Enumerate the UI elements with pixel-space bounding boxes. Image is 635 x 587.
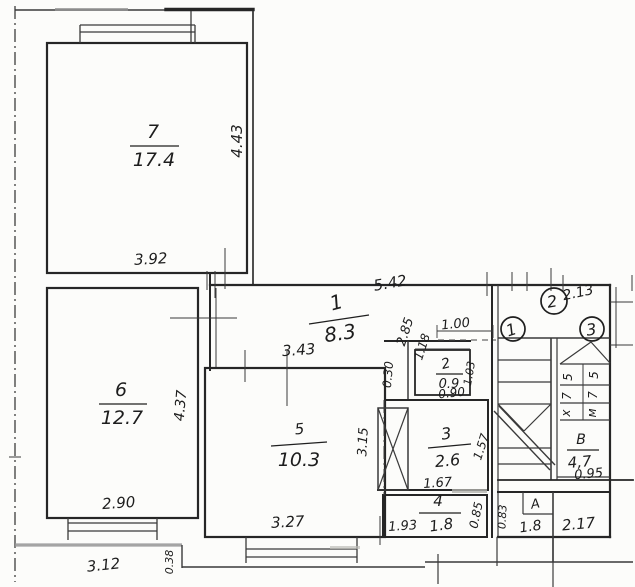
room-number: А <box>529 496 541 512</box>
dim-room5-width-top: 3.43 <box>281 340 316 360</box>
room-3-label: 3 2.6 <box>428 423 471 471</box>
dim-room4-width: 1.93 <box>388 518 418 535</box>
room-number: 4 <box>433 492 443 510</box>
entry-marker-1-number: 1 <box>504 319 520 340</box>
dim-wall-niche: 0.30 <box>380 360 396 388</box>
room-6-label: 6 12.7 <box>99 379 147 429</box>
floor-plan-drawing: 7 17.4 6 12.7 5 10.3 1 8.3 2 0.9 3 2.6 <box>0 0 635 587</box>
dim-outer-width-left: 3.12 <box>86 554 121 575</box>
entry-marker-3-number: 3 <box>585 319 598 339</box>
staircase <box>438 338 633 480</box>
dim-room5-width-bottom: 3.27 <box>271 512 306 532</box>
dim-room4-height: 0.85 <box>466 501 485 530</box>
room-number: В <box>576 432 586 448</box>
stair-left-char-3: х <box>559 409 573 418</box>
room-number: 3 <box>440 423 453 443</box>
room-area: 10.3 <box>278 449 320 471</box>
room-A-label: А 1.8 <box>518 496 542 536</box>
window-room5-bottom <box>246 537 357 563</box>
room-5-label: 5 10.3 <box>271 420 327 471</box>
stair-right-char-2: 7 <box>586 391 600 399</box>
stair-right-char-3: м <box>585 408 599 417</box>
room-7-label: 7 17.4 <box>130 121 179 171</box>
dim-hall-diag1: 2.85 <box>394 316 417 348</box>
room-area: 2.6 <box>434 450 461 471</box>
dim-hall-width: 5.42 <box>372 271 408 295</box>
window-room7-top <box>80 11 195 43</box>
entry-marker-2-number: 2 <box>545 291 558 311</box>
entry-marker-1: 1 <box>501 317 525 341</box>
dim-bottom-block-width: 2.17 <box>561 514 596 535</box>
walls <box>47 11 633 566</box>
room-labels: 7 17.4 6 12.7 5 10.3 1 8.3 2 0.9 3 2.6 <box>99 121 599 537</box>
dim-hall-diag2: 1.18 <box>411 332 433 362</box>
dim-roomA-height: 0.83 <box>495 504 509 529</box>
room-1-label: 1 8.3 <box>309 289 369 347</box>
room-area: 8.3 <box>323 319 358 347</box>
room-area: 1.8 <box>428 514 454 535</box>
room-number: 6 <box>115 379 127 401</box>
room-area: 17.4 <box>133 149 175 171</box>
dim-roomB-width: 0.95 <box>574 466 604 483</box>
dim-room2-width-top: 1.00 <box>440 316 470 334</box>
window-room6-bottom <box>68 518 157 540</box>
stair-left-char-1: 5 <box>561 373 575 381</box>
room-number: 7 <box>147 121 159 143</box>
room-area: 12.7 <box>101 407 143 429</box>
dim-ledge: 0.38 <box>163 550 176 575</box>
floor-plan-sheet: 7 17.4 6 12.7 5 10.3 1 8.3 2 0.9 3 2.6 <box>0 0 635 587</box>
room-area: 1.8 <box>518 518 542 537</box>
dim-room2-height: 1.03 <box>461 360 478 386</box>
stair-right-char-1: 5 <box>587 371 601 379</box>
dim-room7-width: 3.92 <box>134 249 168 269</box>
stair-flight-annotations: 5 7 х 5 7 м <box>559 371 601 417</box>
entry-marker-3: 3 <box>580 317 604 341</box>
dim-duct-height: 3.15 <box>355 427 371 457</box>
dim-room2-width: 0.90 <box>438 385 466 402</box>
dim-room7-height: 4.43 <box>228 124 246 157</box>
dim-room6-height: 4.37 <box>172 389 191 422</box>
dimension-labels: 4.43 3.92 4.37 2.90 3.12 0.38 3.43 3.27 … <box>86 124 604 575</box>
room-4-label: 4 1.8 <box>419 492 461 536</box>
stair-left-char-2: 7 <box>560 392 574 400</box>
dim-room3-width: 1.67 <box>423 475 454 492</box>
room-number: 1 <box>327 289 346 315</box>
vent-shaft <box>378 400 408 495</box>
room-number: 2 <box>440 355 453 373</box>
dim-room6-width: 2.90 <box>101 493 136 513</box>
room-number: 5 <box>294 420 305 439</box>
